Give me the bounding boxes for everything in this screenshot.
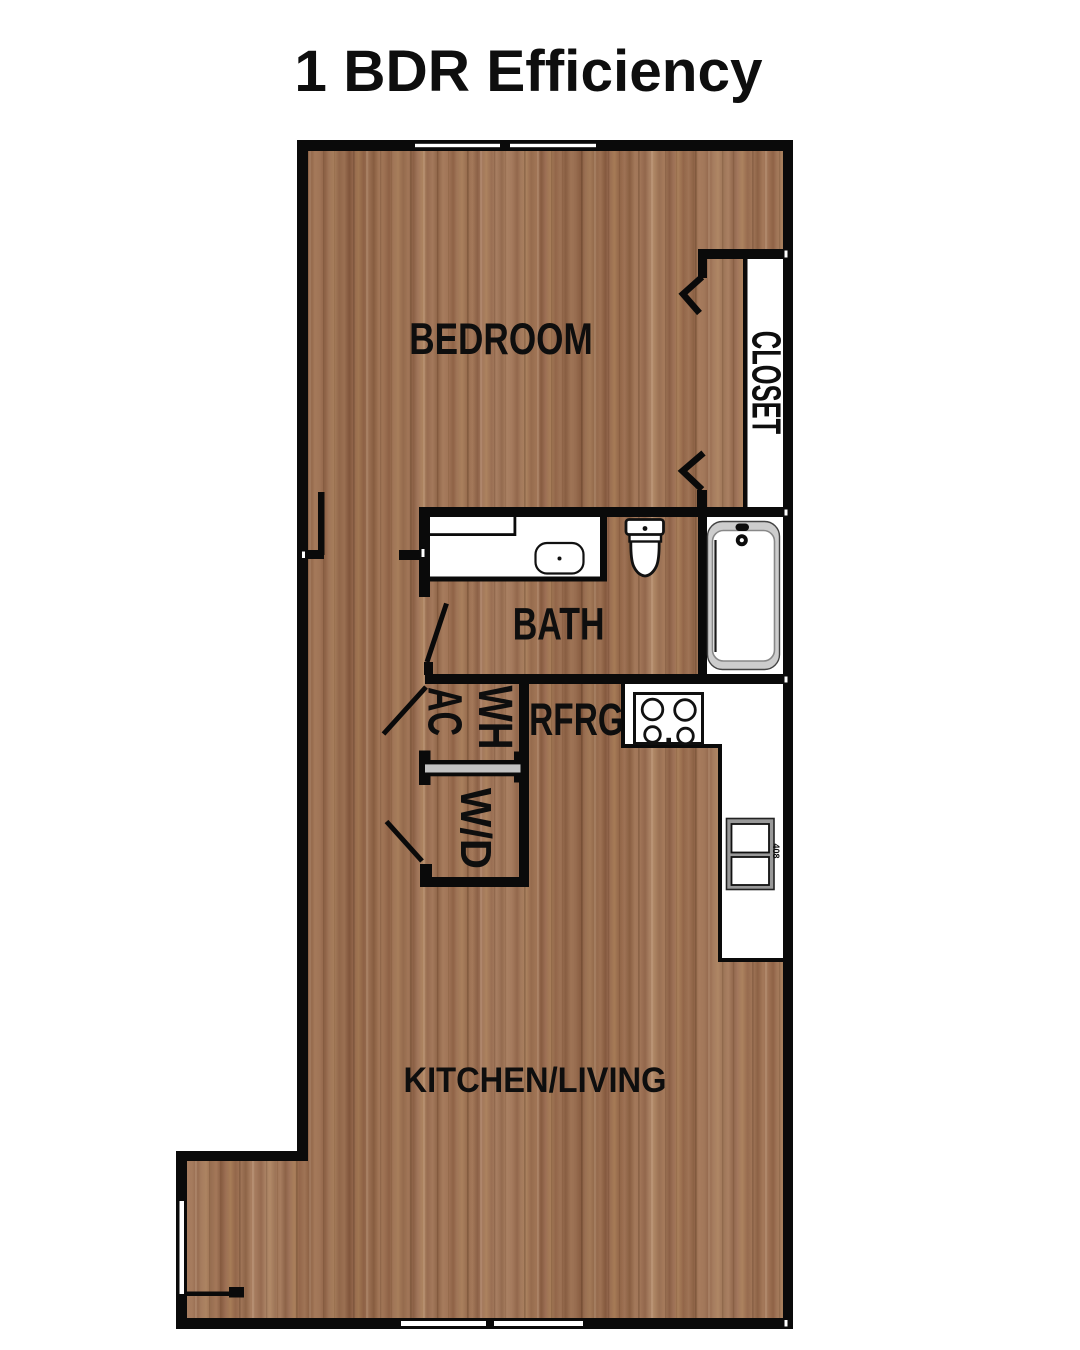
svg-text:BATH: BATH	[513, 600, 605, 650]
svg-text:RFRG: RFRG	[529, 695, 624, 745]
svg-text:W/D: W/D	[451, 788, 500, 869]
svg-text:408: 408	[771, 843, 781, 858]
svg-text:BEDROOM: BEDROOM	[409, 315, 593, 364]
svg-text:AC: AC	[418, 687, 472, 736]
svg-text:KITCHEN/LIVING: KITCHEN/LIVING	[404, 1061, 667, 1101]
svg-text:CLOSET: CLOSET	[743, 331, 788, 435]
svg-text:1 BDR Efficiency: 1 BDR Efficiency	[294, 39, 763, 104]
svg-text:WH: WH	[468, 686, 521, 750]
